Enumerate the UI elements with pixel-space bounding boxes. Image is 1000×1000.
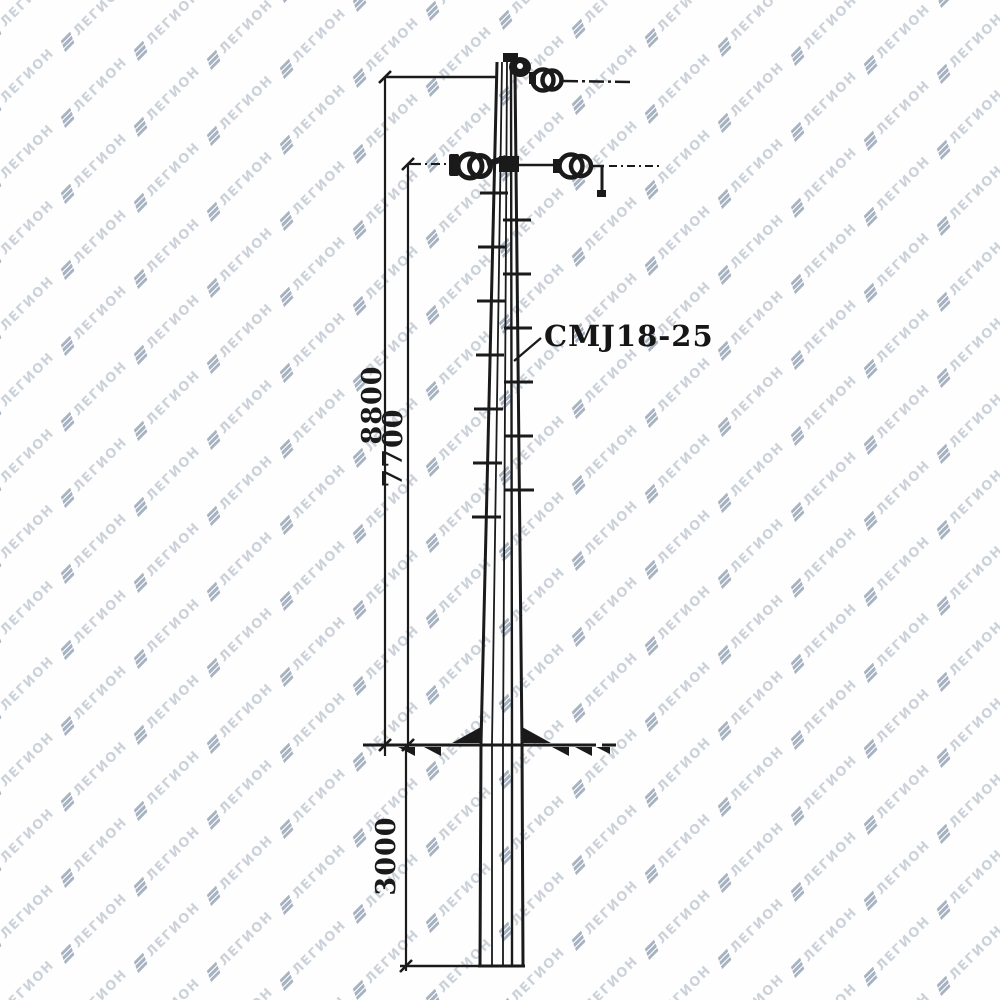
dim-value-7700: 7700 (378, 408, 409, 487)
crossarm-insulator-assembly (412, 154, 660, 197)
pole-technical-drawing: 8800 7700 3000 CMJ18-25 (0, 0, 1000, 1000)
top-insulator-assembly (503, 53, 634, 91)
step-bolts (472, 193, 534, 517)
ground-hatching (398, 727, 610, 756)
crossarm-bolt (499, 156, 519, 172)
scanned-pole-drawing-page: ЛЕГИОНЛЕГИОНЛЕГИОНЛЕГИОНЛЕГИОНЛЕГИОНЛЕГИ… (0, 0, 1000, 1000)
top-conductor-line (563, 81, 634, 82)
ground-line-group (363, 727, 616, 756)
dim-value-3000: 3000 (371, 816, 402, 895)
pole-type-label: CMJ18-25 (544, 319, 714, 353)
pole-body (478, 62, 525, 966)
